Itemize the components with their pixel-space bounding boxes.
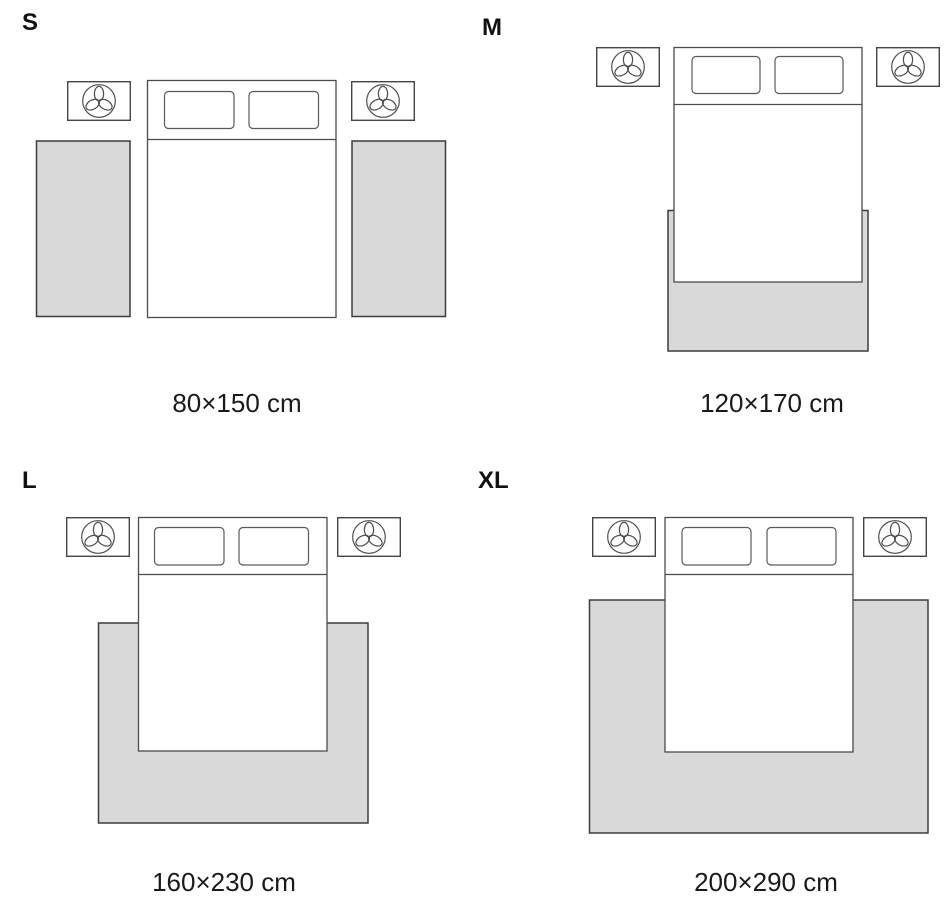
variant-xl: XL 200×290 cm xyxy=(478,467,928,897)
nightstand-right xyxy=(877,48,940,87)
size-label-xl: XL xyxy=(478,467,509,494)
nightstand-left xyxy=(593,518,656,557)
pillow-right xyxy=(767,528,836,566)
nightstand-left xyxy=(68,82,131,121)
pillow-right xyxy=(249,92,319,129)
variant-m: M 120×170 cm xyxy=(482,14,939,418)
pillow-left xyxy=(692,57,760,94)
bed-l xyxy=(139,518,328,752)
pillow-left xyxy=(682,528,751,566)
nightstand-right xyxy=(352,82,415,121)
size-label-m: M xyxy=(482,14,502,41)
caption-l: 160×230 cm xyxy=(152,867,296,897)
variant-l: L 160×230 cm xyxy=(22,467,400,897)
bed-s xyxy=(148,81,337,318)
pillow-left xyxy=(165,92,235,129)
bed-xl xyxy=(665,518,853,753)
size-label-l: L xyxy=(22,467,37,494)
nightstand-right xyxy=(864,518,927,557)
nightstand-right xyxy=(338,518,401,557)
caption-xl: 200×290 cm xyxy=(694,867,838,897)
caption-s: 80×150 cm xyxy=(172,388,301,418)
pillow-right xyxy=(239,528,309,566)
rug-s-left xyxy=(37,141,131,317)
pillow-right xyxy=(775,57,843,94)
caption-m: 120×170 cm xyxy=(700,388,844,418)
rug-s-right xyxy=(352,141,446,317)
size-guide-diagram: S 80×150 cm M xyxy=(0,0,950,900)
size-label-s: S xyxy=(22,9,38,36)
pillow-left xyxy=(155,528,225,566)
nightstand-left xyxy=(597,48,660,87)
rug-size-guide: S 80×150 cm M xyxy=(0,0,950,900)
variant-s: S 80×150 cm xyxy=(22,9,446,418)
nightstand-left xyxy=(67,518,130,557)
bed-m xyxy=(674,48,862,283)
